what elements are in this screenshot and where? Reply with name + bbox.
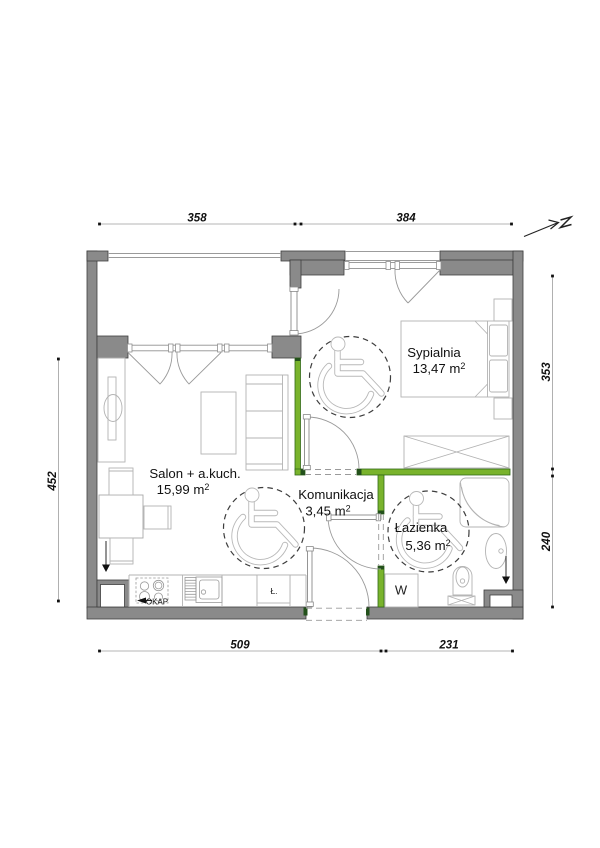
svg-text:509: 509 (230, 639, 250, 651)
svg-text:W: W (395, 583, 408, 598)
svg-text:384: 384 (396, 212, 416, 224)
svg-text:Sypialnia: Sypialnia (407, 345, 461, 360)
svg-text:Ł.: Ł. (270, 586, 277, 596)
svg-text:13,47 m2: 13,47 m2 (413, 361, 466, 376)
svg-text:5,36 m2: 5,36 m2 (405, 538, 450, 553)
svg-text:Salon + a.kuch.: Salon + a.kuch. (149, 466, 240, 481)
svg-text:358: 358 (187, 212, 207, 224)
svg-text:15,99 m2: 15,99 m2 (157, 482, 210, 497)
svg-text:231: 231 (438, 639, 458, 651)
svg-text:Łazienka: Łazienka (395, 520, 448, 535)
svg-text:3,45 m2: 3,45 m2 (305, 504, 350, 519)
svg-text:240: 240 (541, 531, 553, 552)
svg-text:Komunikacja: Komunikacja (298, 487, 374, 502)
svg-text:452: 452 (47, 471, 59, 492)
svg-text:353: 353 (541, 362, 553, 382)
svg-text:OKAP: OKAP (146, 598, 168, 607)
